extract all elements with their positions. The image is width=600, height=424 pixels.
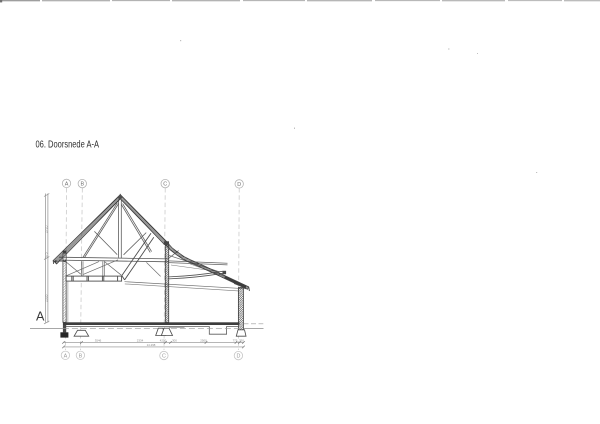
svg-text:14.298: 14.298 (147, 343, 156, 347)
svg-text:A: A (64, 353, 68, 359)
svg-text:C: C (162, 354, 166, 360)
svg-text:575: 575 (45, 252, 49, 258)
svg-text:2335: 2335 (45, 294, 49, 302)
svg-text:4250: 4250 (160, 339, 167, 343)
svg-text:300: 300 (172, 339, 177, 343)
svg-text:06. Doorsnede A-A: 06. Doorsnede A-A (36, 140, 100, 151)
svg-text:D: D (237, 182, 241, 188)
svg-text:775: 775 (233, 339, 238, 343)
svg-text:2334: 2334 (137, 339, 144, 343)
svg-text:B: B (79, 353, 83, 359)
svg-text:A: A (36, 309, 45, 323)
svg-text:D: D (236, 354, 240, 360)
svg-text:2720: 2720 (45, 225, 49, 233)
svg-text:350: 350 (239, 339, 244, 343)
svg-text:C: C (163, 182, 167, 188)
svg-text:A: A (65, 182, 69, 188)
svg-text:B: B (80, 182, 84, 188)
svg-text:3546: 3546 (95, 339, 102, 343)
svg-text:2500: 2500 (200, 339, 207, 343)
